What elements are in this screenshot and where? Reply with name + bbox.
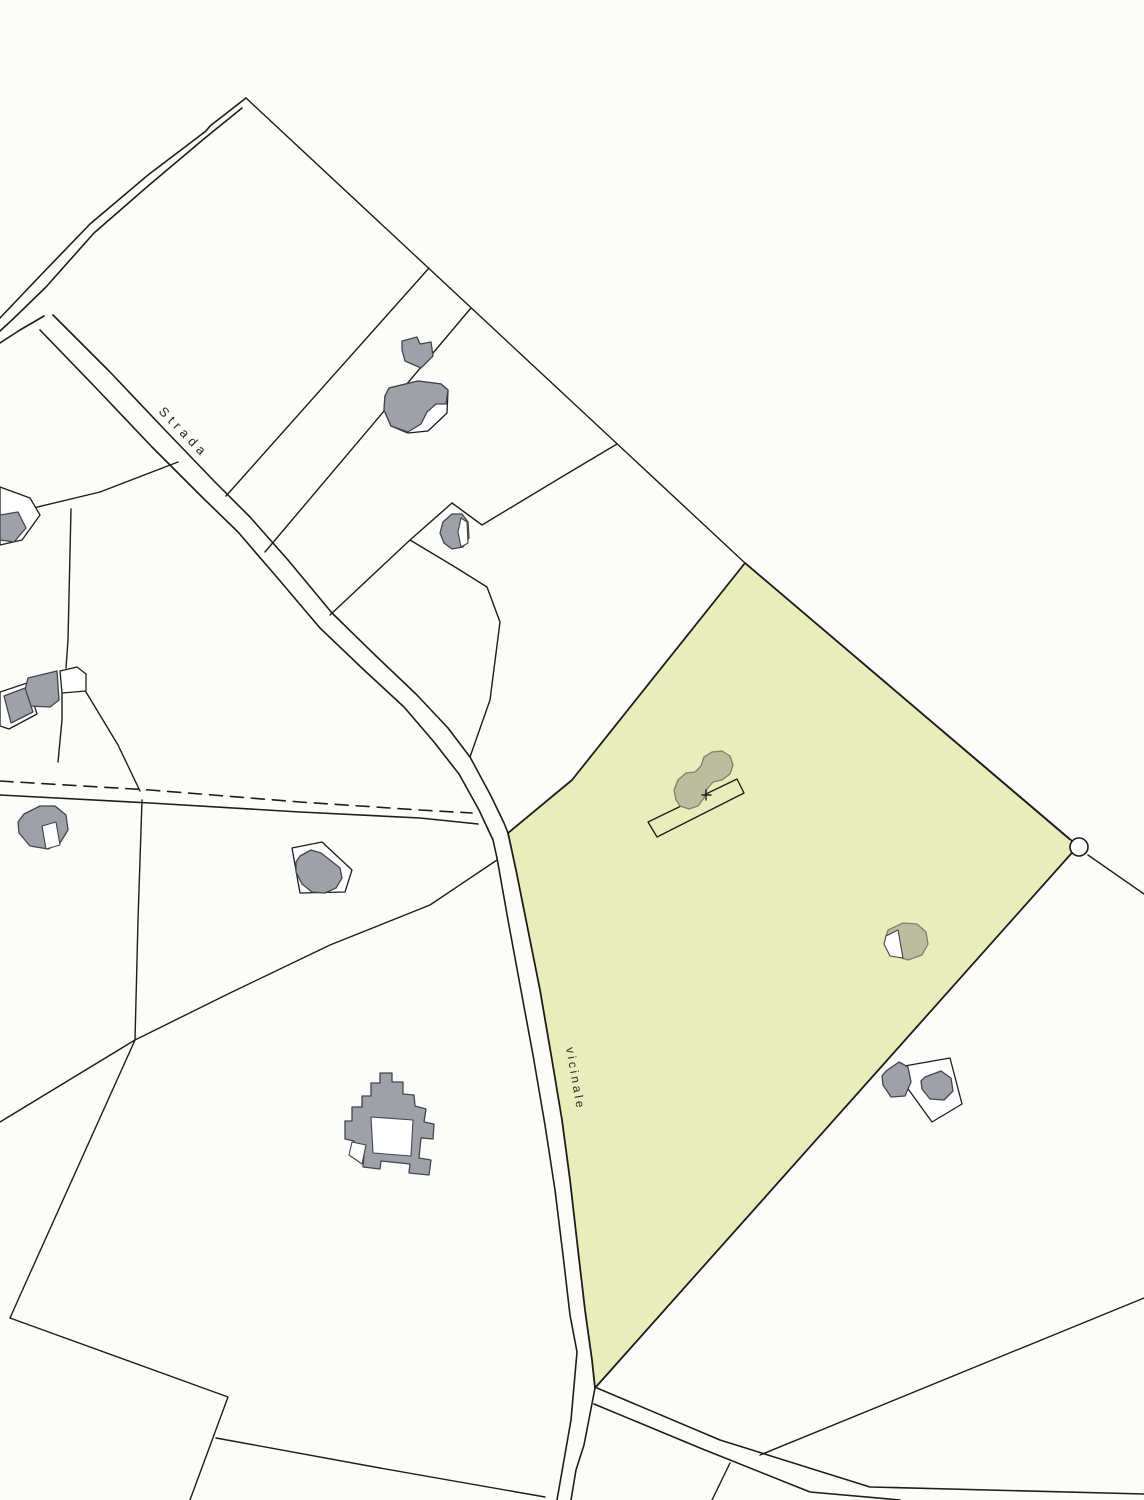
cadastral-map: Stradavicinale [0,0,1144,1500]
building-complex-courtyard [371,1117,413,1156]
boundary-node-circle [1070,838,1088,856]
building-outline-cluster-house [60,667,86,693]
cadastral-map-page: Stradavicinale [0,0,1144,1500]
map-background [0,0,1144,1500]
